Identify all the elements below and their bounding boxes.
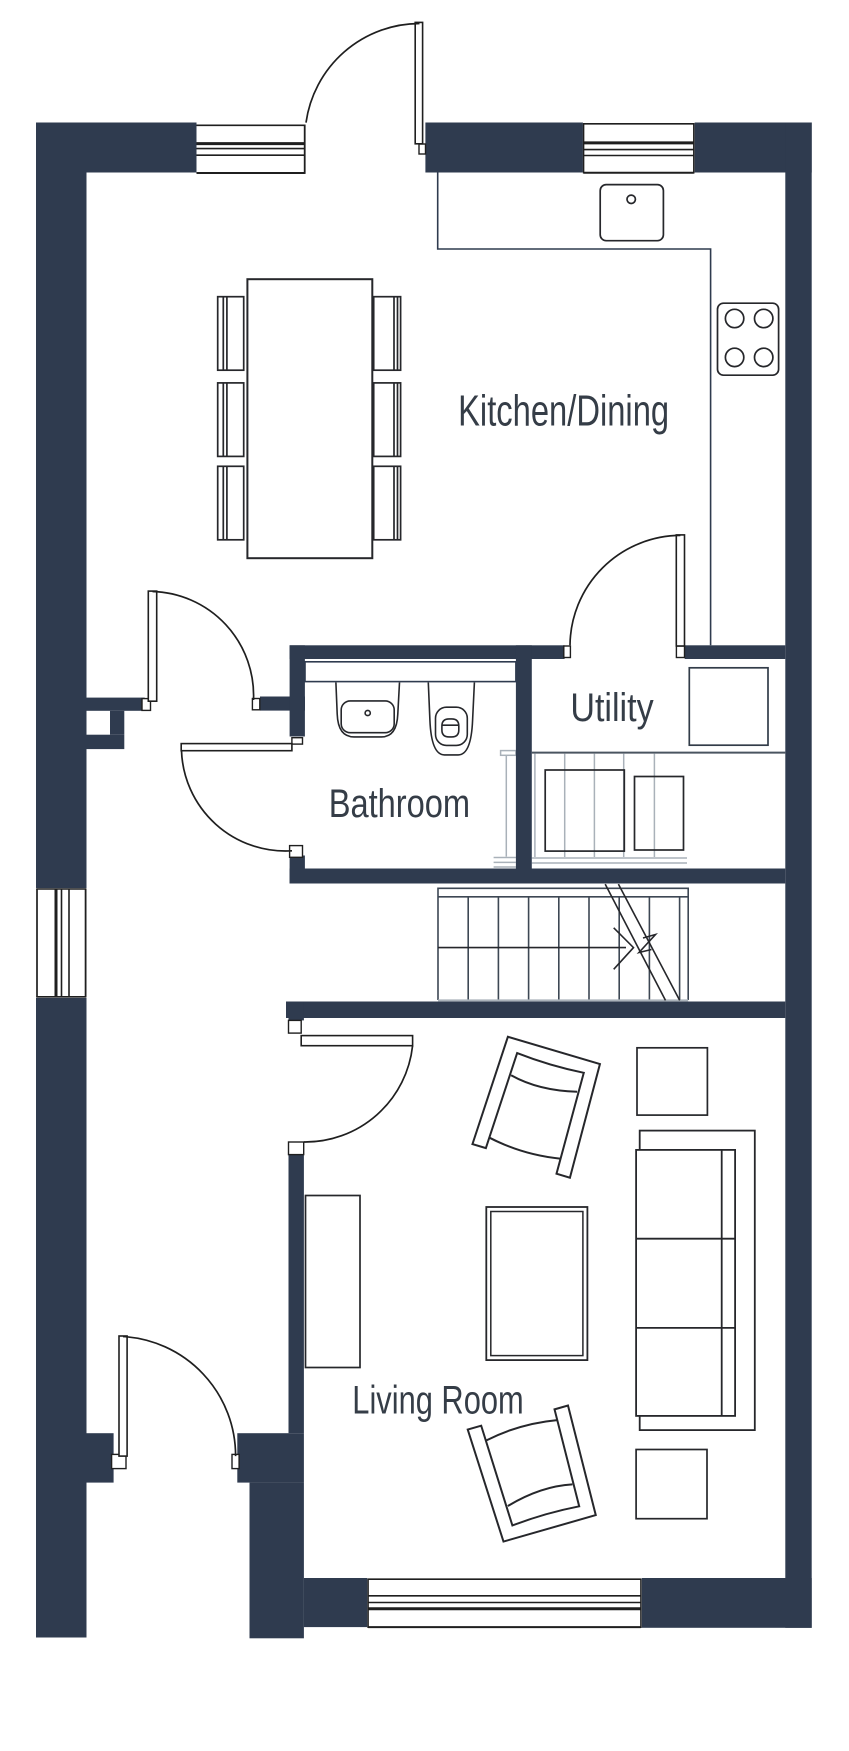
svg-text:Living Room: Living Room [352,1378,523,1422]
svg-text:Bathroom: Bathroom [329,782,470,826]
svg-text:Kitchen/Dining: Kitchen/Dining [458,386,669,435]
svg-text:Utility: Utility [570,686,653,730]
